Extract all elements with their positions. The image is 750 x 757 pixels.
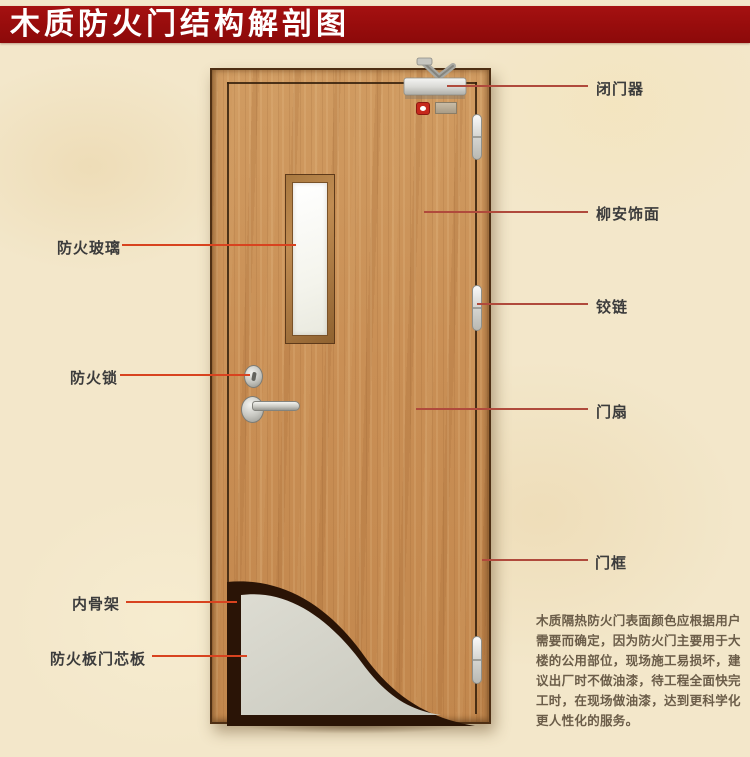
title-banner: 木质防火门结构解剖图 (0, 6, 750, 43)
label-veneer: 柳安饰面 (596, 203, 660, 224)
leader-line-core-board (152, 655, 247, 657)
page-title: 木质防火门结构解剖图 (0, 6, 750, 43)
label-inner-skeleton: 内骨架 (72, 593, 120, 614)
label-door-frame: 门框 (595, 552, 627, 573)
description-line: 更人性化的服务。 (536, 711, 741, 731)
description-line: 工时，在现场做油漆，达到更科学化 (536, 691, 741, 711)
leader-line-hinge (477, 303, 588, 305)
core-board-gray (241, 594, 441, 715)
alarm-indicator (416, 102, 430, 115)
leader-line-door-closer (447, 85, 588, 87)
hinge-top (472, 114, 482, 160)
label-fire-glass: 防火玻璃 (57, 237, 121, 258)
description-line: 楼的公用部位，现场施工易损坏，建 (536, 651, 741, 671)
label-fire-lock: 防火锁 (70, 367, 118, 388)
label-hinge: 铰链 (596, 296, 628, 317)
glass-pane (292, 182, 328, 336)
label-door-leaf: 门扇 (596, 401, 628, 422)
label-core-board: 防火板门芯板 (50, 648, 146, 669)
description-paragraph: 木质隔热防火门表面颜色应根据用户 需要而确定，因为防火门主要用于大 楼的公用部位… (536, 611, 741, 731)
hinge-middle (472, 285, 482, 331)
fire-door-illustration (210, 68, 491, 724)
leader-line-door-frame (482, 559, 588, 561)
leader-line-veneer (424, 211, 588, 213)
description-line: 需要而确定，因为防火门主要用于大 (536, 631, 741, 651)
leader-line-door-leaf (416, 408, 588, 410)
label-door-closer: 闭门器 (596, 78, 644, 99)
lock-cylinder (244, 365, 263, 388)
description-line: 议出厂时不做油漆，待工程全面快完 (536, 671, 741, 691)
description-line: 木质隔热防火门表面颜色应根据用户 (536, 611, 741, 631)
leader-line-fire-lock (120, 374, 250, 376)
strike-plate (435, 102, 457, 114)
door-handle (252, 401, 300, 411)
leader-line-fire-glass (122, 244, 296, 246)
fire-glass-window (285, 174, 335, 344)
door-leaf-gap-left (227, 82, 229, 584)
cutaway-section (225, 575, 478, 726)
leader-line-inner-skeleton (126, 601, 237, 603)
